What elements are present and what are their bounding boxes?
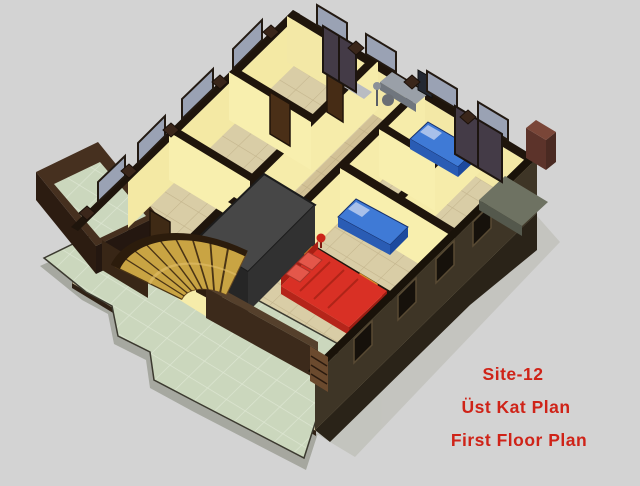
office-chair [382,94,394,106]
caption-line-1: Site-12 [483,364,544,384]
floor-plan-render: Site-12 Üst Kat Plan First Floor Plan [0,0,640,486]
screenshot-canvas: Site-12 Üst Kat Plan First Floor Plan [0,0,640,486]
caption-line-3: First Floor Plan [451,430,587,450]
caption-line-2: Üst Kat Plan [461,397,570,417]
